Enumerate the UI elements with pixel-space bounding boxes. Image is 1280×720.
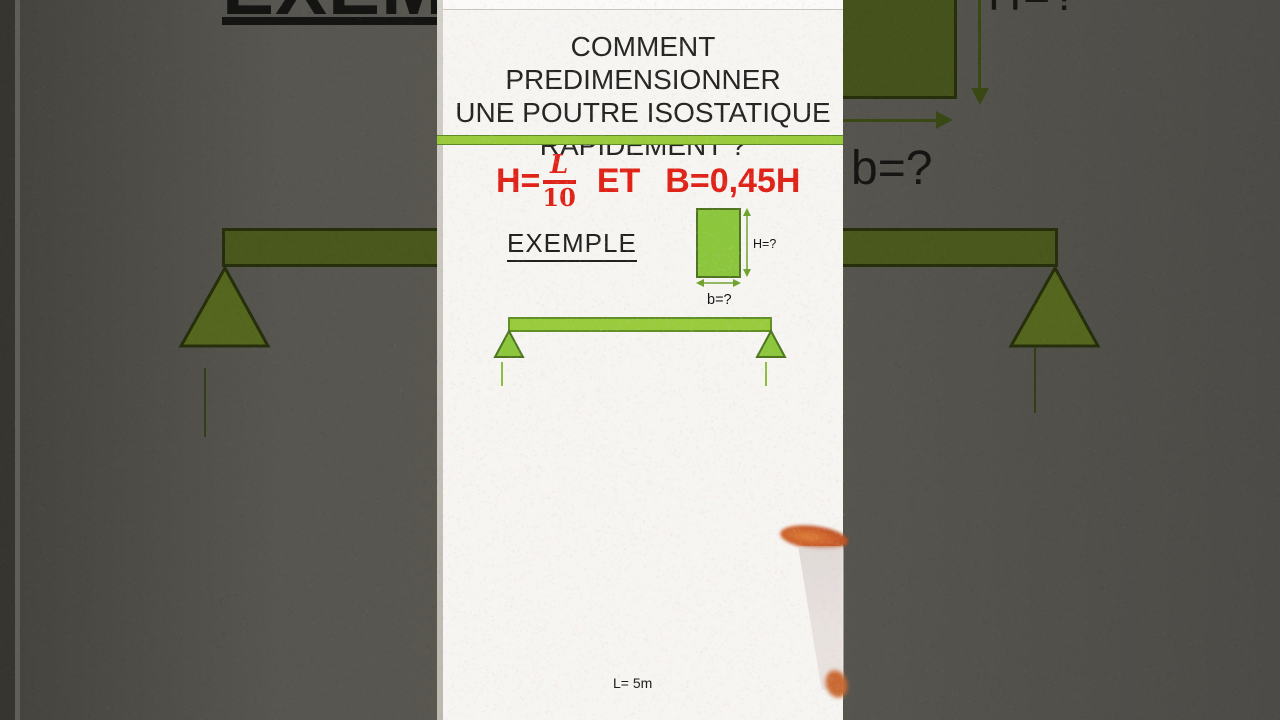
backdrop-height-arrow <box>978 0 981 89</box>
backdrop-support-triangle-left <box>176 264 274 350</box>
video-frame: { "panel": { "title_lines": { "line1": "… <box>0 0 1280 720</box>
height-arrowhead-down-icon <box>743 269 751 277</box>
backdrop-reaction-line-right <box>1034 347 1036 413</box>
green-divider <box>437 135 843 145</box>
formula: H= L 10 ET B=0,45H <box>496 150 800 212</box>
backdrop-support-triangle-right <box>1006 264 1104 350</box>
cross-section-diagram: H=? b=? <box>693 204 808 312</box>
example-heading: EXEMPLE <box>507 228 637 262</box>
support-triangle-left <box>495 331 523 357</box>
width-arrowhead-left-icon <box>696 279 704 287</box>
slide-title-line1: COMMENT PREDIMENSIONNER <box>443 30 843 96</box>
backdrop-left-soft-strip <box>15 0 20 720</box>
formula-lhs: H= <box>496 162 540 201</box>
backdrop-width-arrow <box>843 119 937 122</box>
section-height-label: H=? <box>753 237 776 251</box>
backdrop-example-underline <box>222 17 462 25</box>
formula-rhs: B=0,45H <box>665 162 800 201</box>
width-arrowhead-right-icon <box>733 279 741 287</box>
beam-bar <box>509 318 771 331</box>
formula-conjunction: ET <box>597 162 640 201</box>
slide-title-line2: UNE POUTRE ISOSTATIQUE <box>443 96 843 129</box>
formula-fraction: L 10 <box>542 152 575 210</box>
slide-panel: COMMENT PREDIMENSIONNER UNE POUTRE ISOST… <box>443 0 843 720</box>
support-triangle-right <box>757 331 785 357</box>
backdrop-height-label-cut: H=? <box>988 0 1080 21</box>
beam-diagram <box>488 312 798 392</box>
section-width-label: b=? <box>707 292 732 308</box>
formula-numerator: L <box>550 152 568 178</box>
formula-denominator: 10 <box>542 186 575 210</box>
backdrop-beam-right-segment <box>843 228 1058 267</box>
cross-section-rectangle <box>697 209 740 277</box>
slide-top-edge <box>443 0 843 10</box>
backdrop-left-dark-strip <box>0 0 15 720</box>
backdrop-height-arrowhead-icon <box>971 88 989 105</box>
beam-span-label: L= 5m <box>613 675 652 691</box>
photo-fragment-faint-shape <box>788 546 844 690</box>
backdrop-width-label: b=? <box>851 141 932 196</box>
backdrop-beam-left-segment <box>222 228 443 267</box>
height-arrowhead-up-icon <box>743 208 751 216</box>
backdrop-width-arrowhead-icon <box>936 111 953 129</box>
backdrop-reaction-line-left <box>204 368 206 437</box>
